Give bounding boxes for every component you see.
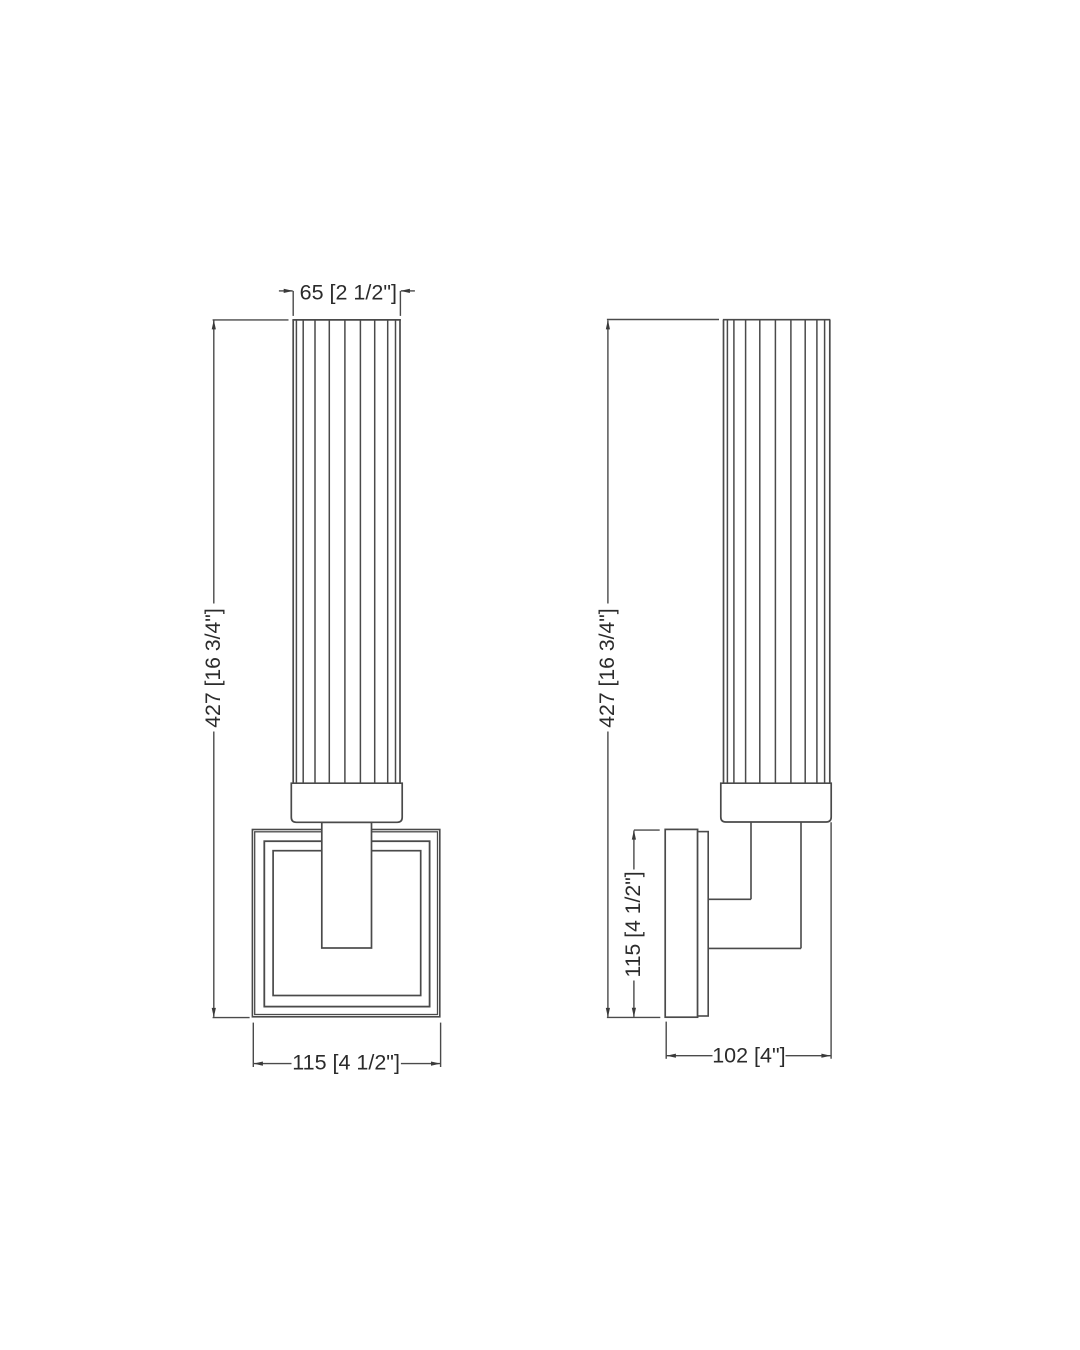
svg-text:427 [16 3/4"]: 427 [16 3/4"] — [596, 608, 619, 727]
svg-text:427 [16 3/4"]: 427 [16 3/4"] — [202, 608, 225, 727]
svg-text:102 [4"]: 102 [4"] — [712, 1043, 785, 1067]
svg-text:65 [2 1/2"]: 65 [2 1/2"] — [300, 280, 397, 304]
svg-text:115 [4 1/2"]: 115 [4 1/2"] — [622, 871, 645, 977]
svg-text:115 [4 1/2"]: 115 [4 1/2"] — [292, 1050, 400, 1074]
